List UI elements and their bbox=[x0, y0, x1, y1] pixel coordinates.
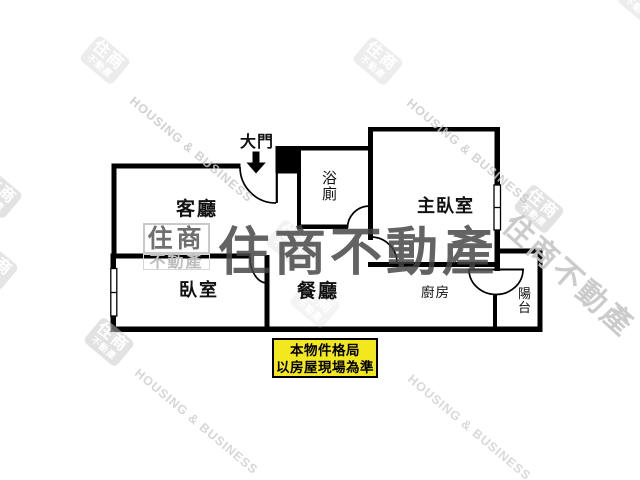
disclaimer-line2: 以房屋現場為準 bbox=[274, 359, 376, 376]
room-label-dining-room: 餐廳 bbox=[297, 282, 339, 303]
room-label-master-bedroom: 主臥室 bbox=[417, 197, 474, 217]
wall-top-bathroom bbox=[298, 146, 373, 151]
disclaimer-box: 本物件格局 以房屋現場為準 bbox=[272, 338, 378, 378]
entrance-label: 大門 bbox=[240, 134, 274, 152]
room-label-bedroom: 臥室 bbox=[179, 281, 219, 301]
wall-bathroom-left bbox=[297, 146, 301, 229]
wall-balcony-top bbox=[498, 249, 543, 254]
room-label-living-room: 客廳 bbox=[176, 200, 218, 221]
wall-master-top bbox=[368, 127, 500, 132]
wall-kitchen-top bbox=[368, 262, 498, 267]
wall-bottom bbox=[111, 327, 543, 333]
entrance-pillar bbox=[276, 146, 299, 174]
room-label-bathroom: 浴廁 bbox=[321, 171, 338, 203]
room-label-kitchen: 廚房 bbox=[421, 286, 450, 301]
room-label-balcony: 陽台 bbox=[517, 287, 532, 314]
wall-balcony-right bbox=[538, 249, 543, 332]
wall-bathroom-bottom bbox=[297, 225, 348, 230]
disclaimer-line1: 本物件格局 bbox=[274, 342, 376, 359]
wall-bedroom-dining-divider bbox=[265, 255, 270, 329]
floor-plan-image: 住商 不動產 HOUSING & BUSINESS 住商 不動產 HOUSING… bbox=[0, 0, 640, 480]
wall-kitchen-balcony-divider bbox=[493, 294, 497, 327]
wall-living-left bbox=[112, 164, 117, 259]
wall-master-right-upper bbox=[495, 127, 501, 185]
wall-living-top bbox=[112, 164, 241, 169]
wall-hall-master-divider bbox=[368, 127, 373, 240]
wall-living-bedroom-divider bbox=[112, 254, 251, 259]
floor-plan-canvas bbox=[0, 0, 640, 480]
wall-bedroom-left-upper bbox=[111, 254, 117, 270]
